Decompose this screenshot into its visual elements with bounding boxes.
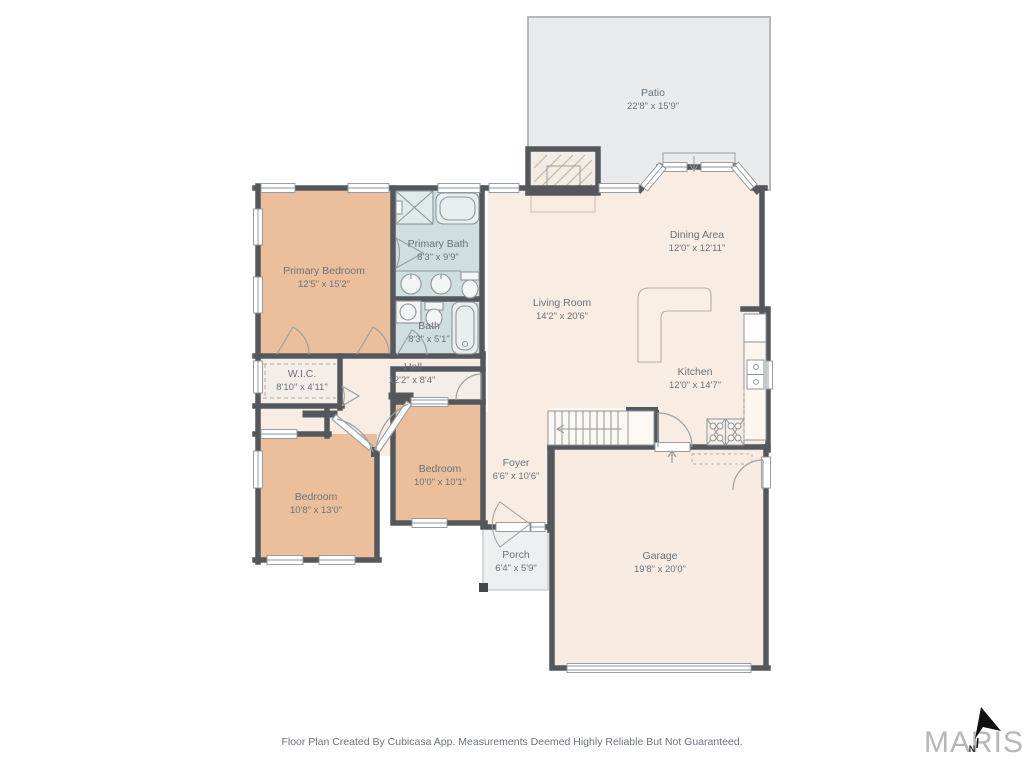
svg-text:12'2" x 8'4": 12'2" x 8'4" (389, 375, 436, 386)
svg-text:W.I.C.: W.I.C. (288, 368, 317, 380)
stairs-icon (548, 411, 654, 445)
svg-text:Primary Bath: Primary Bath (408, 238, 469, 250)
svg-text:10'0" x 10'1": 10'0" x 10'1" (414, 477, 466, 488)
toilet-icon (461, 272, 479, 298)
disclaimer-text: Floor Plan Created By Cubicasa App. Meas… (0, 736, 1024, 748)
stove-icon (707, 419, 744, 445)
svg-text:22'8" x 15'9": 22'8" x 15'9" (627, 101, 679, 112)
svg-text:14'2" x 20'6": 14'2" x 20'6" (536, 311, 588, 322)
refrigerator-icon (744, 314, 766, 342)
svg-text:Garage: Garage (642, 550, 677, 562)
svg-text:6'4" x 5'9": 6'4" x 5'9" (495, 563, 537, 574)
svg-text:10'8" x 13'0": 10'8" x 13'0" (290, 505, 342, 516)
porch-post (479, 583, 488, 592)
svg-text:Hall: Hall (404, 361, 422, 373)
svg-text:6'6" x 10'6": 6'6" x 10'6" (493, 471, 540, 482)
svg-text:Primary Bedroom: Primary Bedroom (283, 265, 365, 277)
svg-text:12'0" x 14'7": 12'0" x 14'7" (669, 380, 721, 391)
svg-text:Foyer: Foyer (503, 457, 530, 469)
fireplace-icon (528, 149, 598, 212)
garage-door (567, 664, 751, 673)
svg-text:Porch: Porch (502, 549, 530, 561)
svg-text:8'3" x 5'1": 8'3" x 5'1" (408, 334, 450, 345)
kitchen-sink-icon (747, 360, 764, 389)
svg-text:19'8" x 20'0": 19'8" x 20'0" (634, 564, 686, 575)
svg-text:12'5" x 15'2": 12'5" x 15'2" (298, 279, 350, 290)
svg-text:Kitchen: Kitchen (677, 366, 712, 378)
kitchen-counter (744, 342, 766, 440)
floor-plan-canvas: Patio 22'8" x 15'9" Primary Bedroom 12'5… (0, 0, 1024, 768)
svg-text:8'10" x 4'11": 8'10" x 4'11" (276, 382, 327, 393)
svg-text:12'0" x 12'11": 12'0" x 12'11" (669, 243, 726, 254)
svg-text:8'3" x 9'9": 8'3" x 9'9" (417, 252, 459, 263)
svg-text:Living Room: Living Room (533, 297, 592, 309)
sliding-door (411, 398, 448, 407)
bathtub-icon-2 (452, 302, 478, 354)
svg-text:Bedroom: Bedroom (295, 491, 338, 503)
bathtub-icon (436, 193, 479, 224)
shower-icon (396, 191, 433, 224)
north-label: N (969, 744, 976, 754)
svg-text:Patio: Patio (641, 87, 665, 99)
north-arrow-icon: N (956, 700, 1006, 756)
svg-text:Dining Area: Dining Area (670, 229, 724, 241)
svg-text:Bath: Bath (418, 320, 440, 332)
svg-text:Bedroom: Bedroom (419, 463, 462, 475)
